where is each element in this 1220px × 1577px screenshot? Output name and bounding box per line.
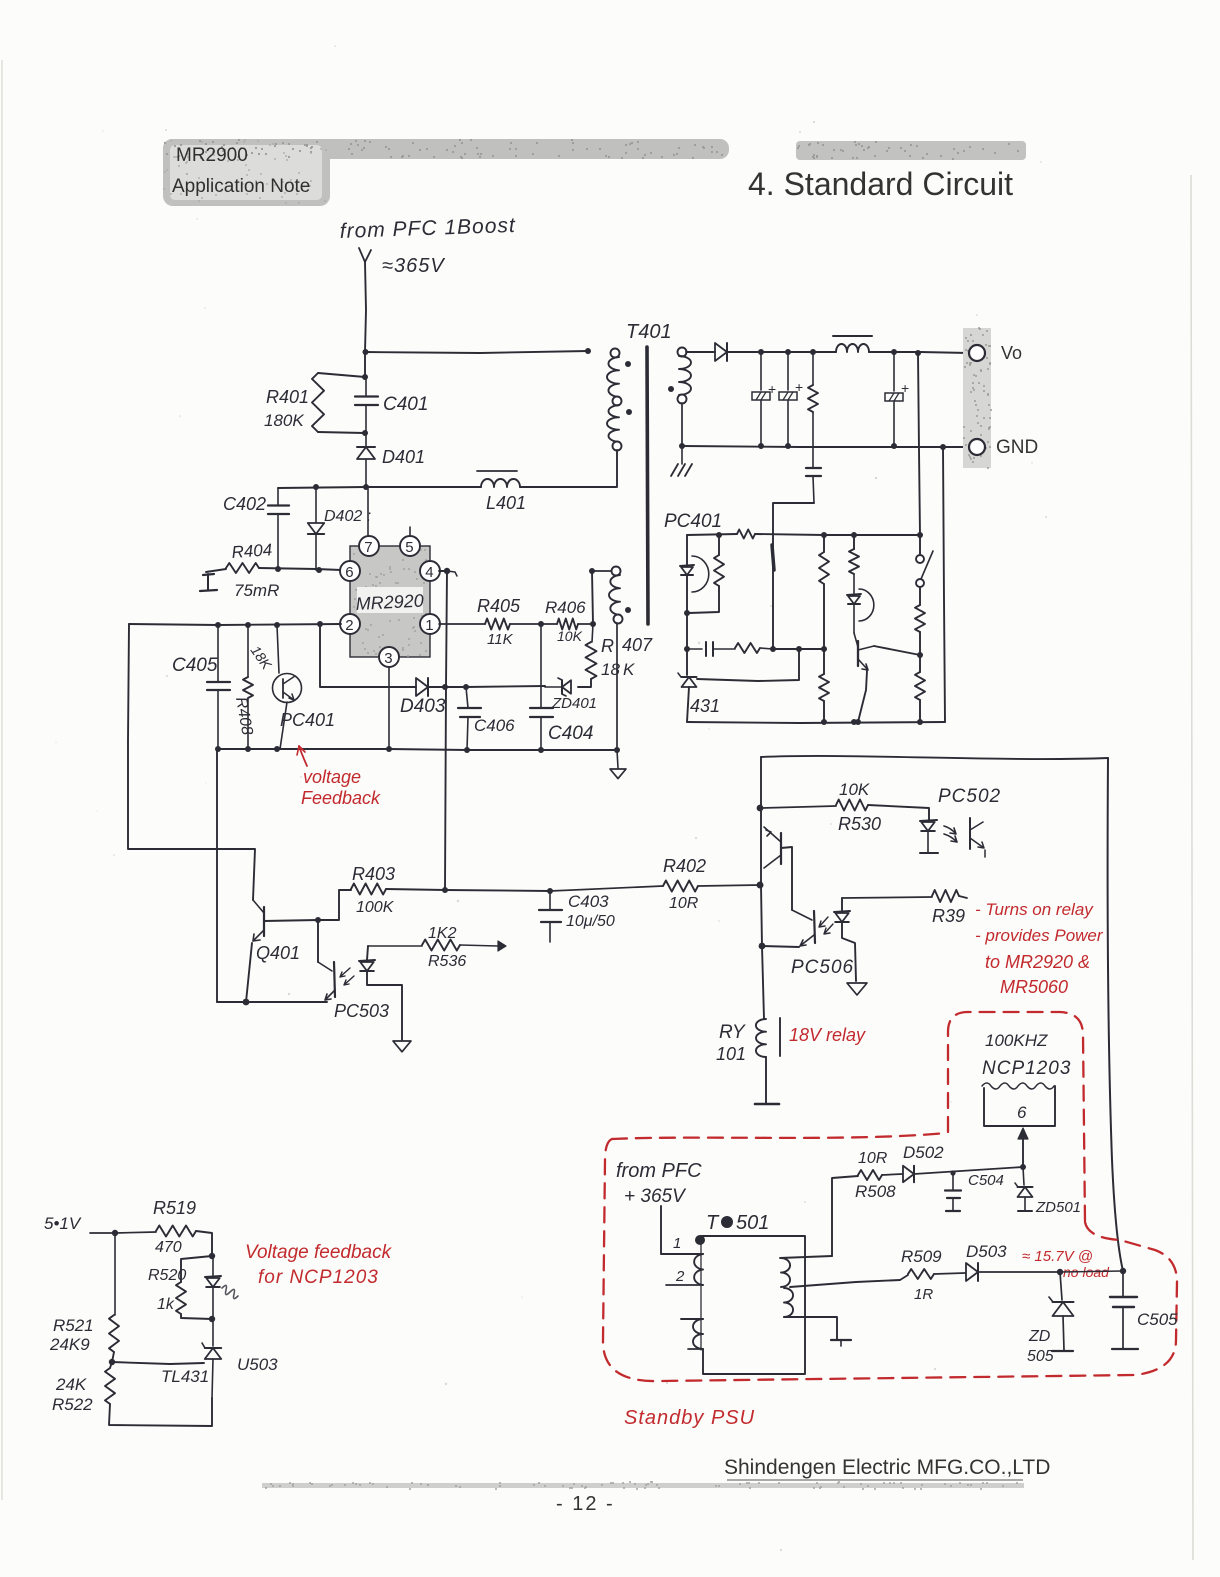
svg-text:D502: D502: [903, 1143, 944, 1162]
svg-text:501: 501: [736, 1212, 769, 1234]
svg-text:R39: R39: [932, 906, 965, 926]
svg-text:180K: 180K: [264, 411, 304, 430]
svg-text:18K: 18K: [248, 643, 276, 673]
svg-text:Standby PSU: Standby PSU: [624, 1407, 755, 1429]
svg-text:+: +: [768, 381, 776, 397]
svg-text:voltage: voltage: [303, 767, 361, 787]
svg-text:1: 1: [425, 617, 433, 634]
svg-text:407: 407: [622, 635, 653, 655]
svg-text:MR2920: MR2920: [355, 590, 424, 614]
svg-text:RY: RY: [719, 1022, 746, 1043]
svg-text:T: T: [706, 1212, 720, 1234]
svg-text:75mR: 75mR: [234, 581, 279, 600]
svg-text:1k: 1k: [157, 1296, 175, 1313]
svg-text:D401: D401: [382, 447, 425, 467]
svg-text:Vo: Vo: [1001, 343, 1022, 363]
svg-text:6: 6: [1017, 1103, 1027, 1122]
svg-text:C405: C405: [172, 655, 218, 676]
svg-text:24K: 24K: [55, 1375, 87, 1394]
svg-text:R530: R530: [838, 814, 881, 834]
svg-text:GND: GND: [996, 437, 1038, 458]
svg-text:R402: R402: [663, 856, 706, 876]
svg-text:≈365V: ≈365V: [382, 255, 445, 277]
svg-text:R508: R508: [855, 1182, 896, 1201]
svg-text:D403: D403: [400, 696, 446, 717]
svg-text:C403: C403: [568, 892, 609, 911]
svg-text:431: 431: [690, 696, 720, 716]
svg-text:to MR2920 &: to MR2920 &: [985, 952, 1090, 972]
svg-text:≈ 15.7V @: ≈ 15.7V @: [1022, 1248, 1093, 1265]
svg-text:C402: C402: [223, 494, 266, 514]
svg-text:+: +: [795, 379, 803, 395]
svg-text:from PFC: from PFC: [616, 1160, 702, 1182]
svg-text:2: 2: [345, 617, 353, 634]
svg-text:R408: R408: [232, 696, 255, 737]
svg-text:R536: R536: [428, 953, 466, 970]
svg-text:4: 4: [425, 564, 433, 581]
svg-text:10R: 10R: [858, 1150, 888, 1167]
svg-text:K: K: [623, 660, 635, 679]
svg-text:R401: R401: [266, 387, 309, 407]
svg-text:10R: 10R: [669, 895, 699, 912]
svg-text:R522: R522: [52, 1395, 93, 1414]
svg-text:T401: T401: [626, 321, 672, 343]
svg-text:R521: R521: [53, 1316, 94, 1335]
svg-text:100KHZ: 100KHZ: [985, 1031, 1048, 1050]
svg-text:100K: 100K: [356, 899, 395, 916]
svg-text:C404: C404: [548, 723, 593, 744]
svg-text:Shindengen Electric MFG.CO.,LT: Shindengen Electric MFG.CO.,LTD: [724, 1456, 1050, 1479]
svg-text:R405: R405: [477, 596, 521, 616]
svg-text:ZD401: ZD401: [551, 695, 597, 712]
svg-text:Feedback: Feedback: [301, 788, 381, 808]
svg-text:MR5060: MR5060: [1000, 977, 1068, 997]
svg-text:- 12 -: - 12 -: [556, 1493, 615, 1515]
svg-text:4. Standard Circuit: 4. Standard Circuit: [748, 166, 1013, 202]
svg-text:470: 470: [155, 1239, 182, 1256]
svg-text:R: R: [601, 636, 614, 656]
svg-text:R520: R520: [148, 1267, 186, 1284]
svg-text:R509: R509: [901, 1247, 942, 1266]
svg-text:MR2900: MR2900: [176, 145, 248, 166]
svg-text:505: 505: [1027, 1348, 1054, 1365]
svg-text:L401: L401: [486, 493, 526, 513]
svg-text:18V relay: 18V relay: [789, 1025, 866, 1045]
svg-text:PC503: PC503: [334, 1001, 389, 1021]
svg-text:U503: U503: [237, 1355, 278, 1374]
svg-text:- provides Power: - provides Power: [975, 926, 1104, 945]
svg-text:3: 3: [384, 650, 392, 667]
svg-text:ZD: ZD: [1028, 1328, 1051, 1345]
svg-text:NCP1203: NCP1203: [982, 1058, 1071, 1079]
svg-text:TL431: TL431: [161, 1367, 209, 1386]
svg-text:C505: C505: [1137, 1310, 1178, 1329]
svg-text:Voltage feedback: Voltage feedback: [245, 1242, 393, 1263]
svg-text:PC506: PC506: [791, 957, 854, 978]
svg-text:Application Note: Application Note: [172, 176, 310, 197]
svg-text:24K9: 24K9: [49, 1335, 90, 1354]
svg-text:1: 1: [673, 1235, 681, 1252]
svg-text:+ 365V: + 365V: [624, 1186, 687, 1207]
svg-text:6: 6: [345, 564, 353, 581]
svg-text:D402 :: D402 :: [324, 508, 371, 525]
svg-text:PC401: PC401: [664, 511, 722, 532]
svg-text:5: 5: [405, 539, 413, 556]
svg-text:10K: 10K: [557, 628, 583, 644]
svg-text:10μ/50: 10μ/50: [566, 913, 615, 930]
svg-text:2: 2: [675, 1268, 685, 1285]
svg-text:R403: R403: [352, 864, 395, 884]
svg-text:C401: C401: [383, 394, 428, 415]
svg-text:PC502: PC502: [938, 786, 1001, 807]
svg-text:R404: R404: [231, 540, 273, 562]
svg-text:PC401: PC401: [280, 710, 335, 730]
svg-text:C504: C504: [968, 1172, 1004, 1189]
svg-text:1K2: 1K2: [428, 925, 457, 942]
svg-text:for NCP1203: for NCP1203: [258, 1267, 379, 1288]
svg-text:101: 101: [716, 1044, 746, 1064]
svg-text:ZD501: ZD501: [1035, 1199, 1081, 1216]
svg-text:D503: D503: [966, 1242, 1007, 1261]
svg-text:7: 7: [364, 539, 372, 556]
svg-text:Q401: Q401: [256, 943, 300, 963]
svg-text:from PFC 1Boost: from PFC 1Boost: [339, 214, 516, 243]
svg-text:R519: R519: [153, 1198, 196, 1218]
svg-text:5•1V: 5•1V: [44, 1214, 82, 1233]
svg-text:+: +: [901, 380, 909, 396]
svg-text:- Turns on relay: - Turns on relay: [975, 900, 1094, 919]
svg-text:1R: 1R: [914, 1286, 933, 1303]
svg-text:R406: R406: [545, 598, 586, 617]
svg-text:C406: C406: [474, 716, 515, 735]
svg-text:11K: 11K: [487, 631, 514, 648]
svg-text:10K: 10K: [839, 780, 870, 799]
